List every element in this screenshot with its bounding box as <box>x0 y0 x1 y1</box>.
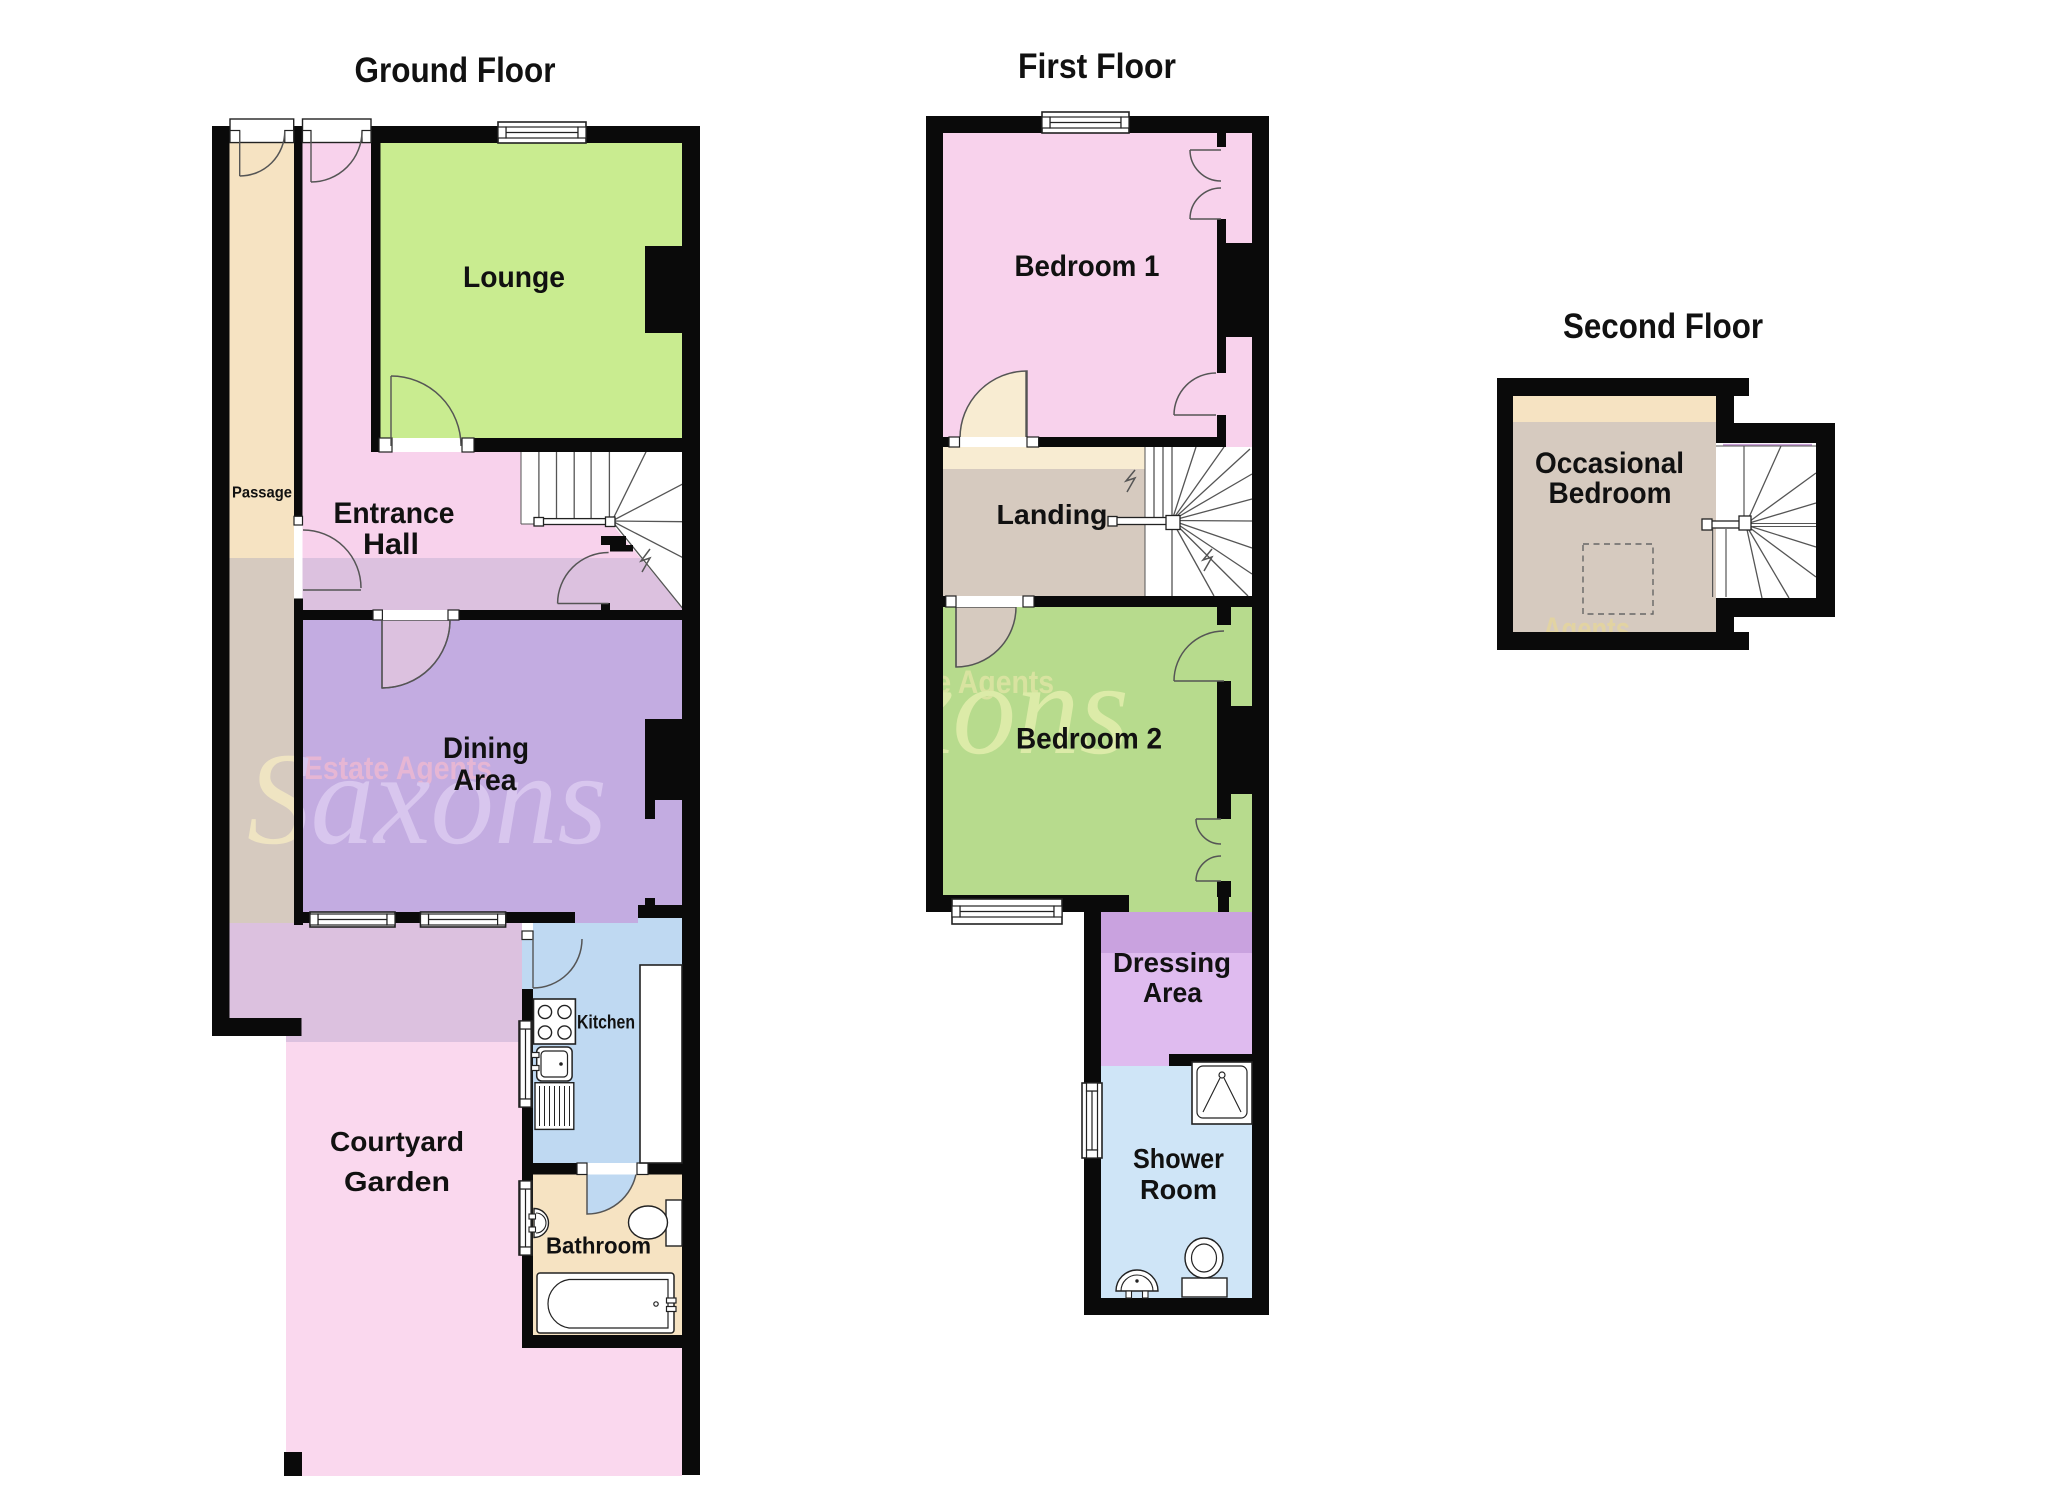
svg-text:Dressing: Dressing <box>1113 947 1231 978</box>
svg-text:Area: Area <box>1143 977 1202 1008</box>
svg-text:Room: Room <box>1140 1174 1217 1205</box>
svg-text:Bedroom 2: Bedroom 2 <box>1016 723 1162 756</box>
svg-text:Hall: Hall <box>363 528 419 561</box>
svg-text:Ground Floor: Ground Floor <box>355 51 556 90</box>
svg-text:Bathroom: Bathroom <box>546 1233 651 1259</box>
svg-text:Lounge: Lounge <box>463 261 565 294</box>
svg-text:Passage: Passage <box>232 485 292 502</box>
svg-text:Bedroom: Bedroom <box>1549 477 1672 510</box>
svg-text:Entrance: Entrance <box>334 497 455 530</box>
svg-text:Dining: Dining <box>443 732 529 765</box>
svg-text:Landing: Landing <box>997 499 1108 530</box>
svg-text:First Floor: First Floor <box>1018 47 1176 86</box>
svg-text:Shower: Shower <box>1133 1143 1224 1174</box>
svg-text:Bedroom 1: Bedroom 1 <box>1015 250 1160 283</box>
svg-text:Occasional: Occasional <box>1535 447 1684 480</box>
svg-text:Courtyard: Courtyard <box>330 1126 464 1157</box>
svg-text:Kitchen: Kitchen <box>577 1013 635 1034</box>
svg-text:Area: Area <box>454 764 517 797</box>
svg-text:Garden: Garden <box>344 1166 450 1197</box>
svg-text:Second Floor: Second Floor <box>1563 307 1763 346</box>
